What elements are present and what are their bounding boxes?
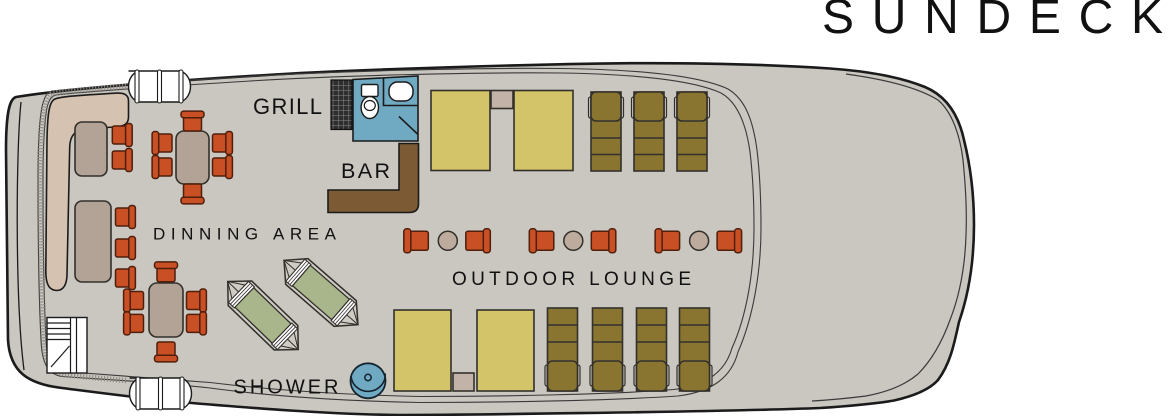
svg-text:BAR: BAR [341,159,390,183]
svg-text:DINNING AREA: DINNING AREA [153,225,337,244]
svg-text:SUNDECK: SUNDECK [822,0,1163,44]
